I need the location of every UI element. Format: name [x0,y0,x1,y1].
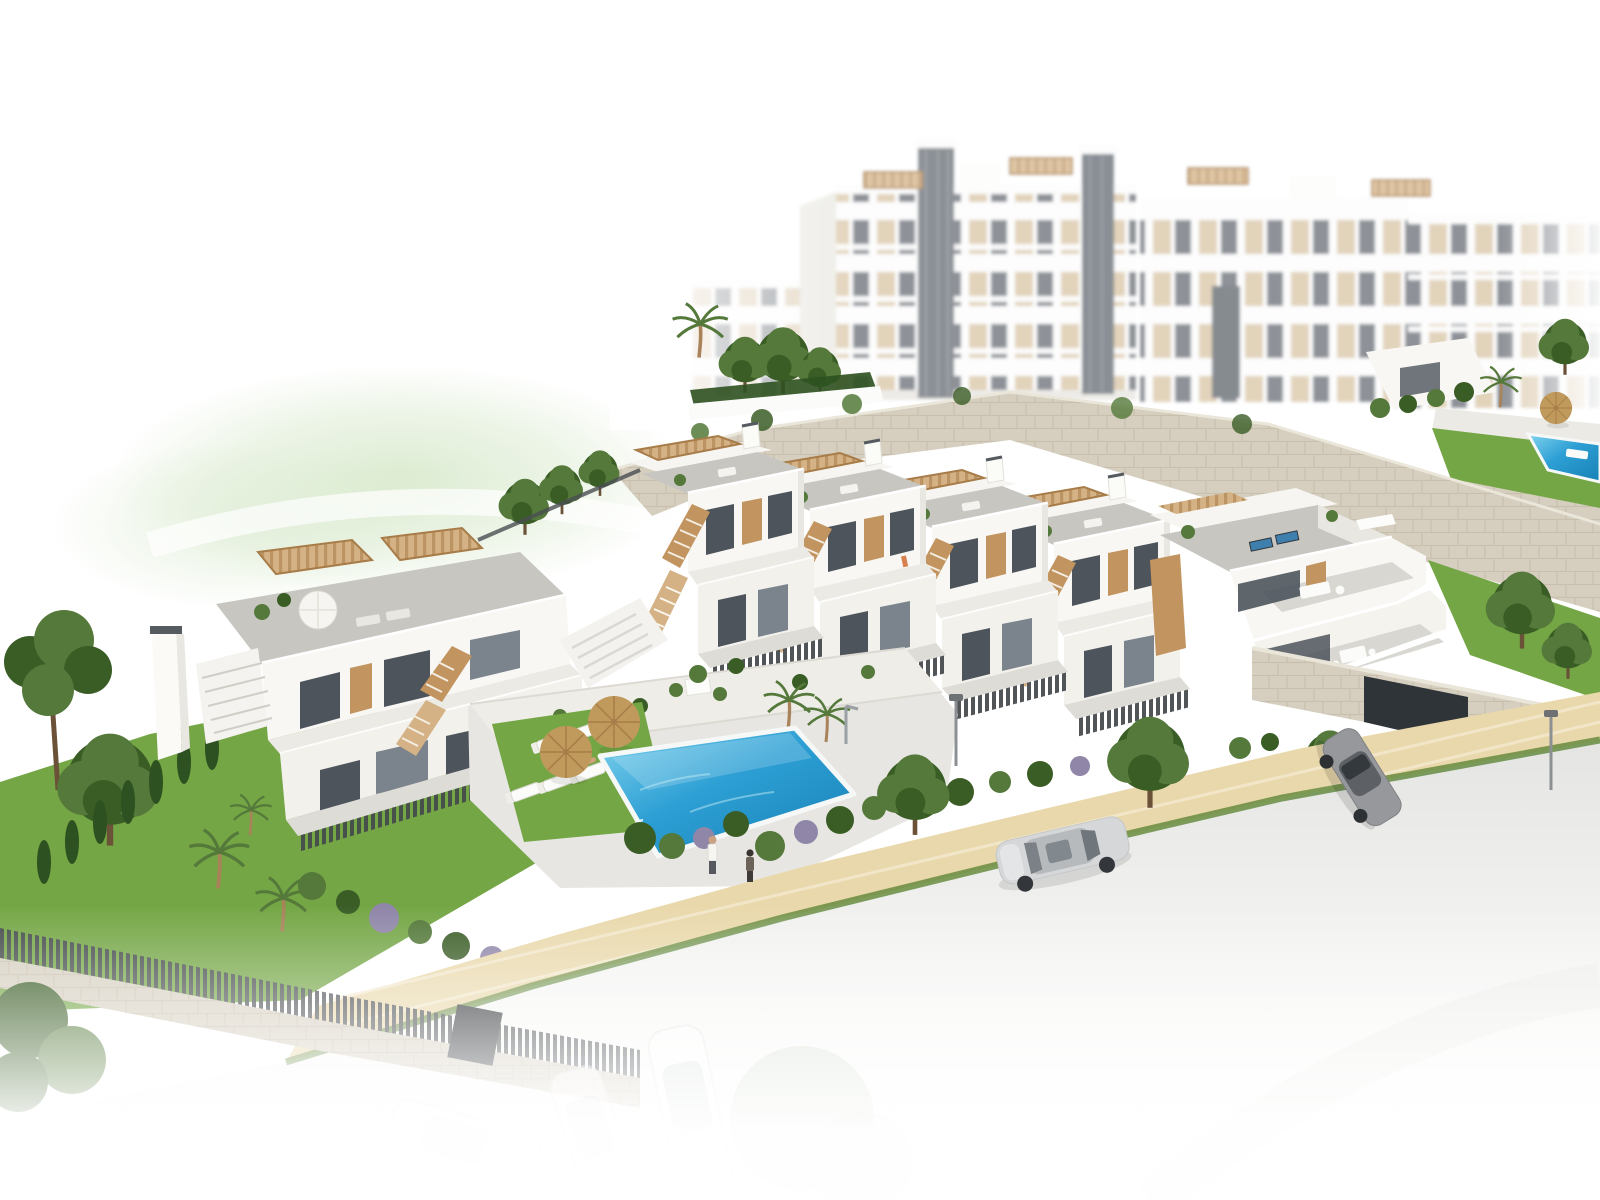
bottom-fade [0,900,1600,1200]
pedestrian [708,836,717,874]
architectural-render [0,0,1600,1200]
white-roof-umbrella [299,591,337,629]
roof-plant [277,593,291,607]
roof-plant [254,604,270,620]
pedestrian [746,849,754,882]
tan-side-panel [1150,554,1186,656]
architectural-render-page [0,0,1600,1200]
entry-door [350,663,372,714]
